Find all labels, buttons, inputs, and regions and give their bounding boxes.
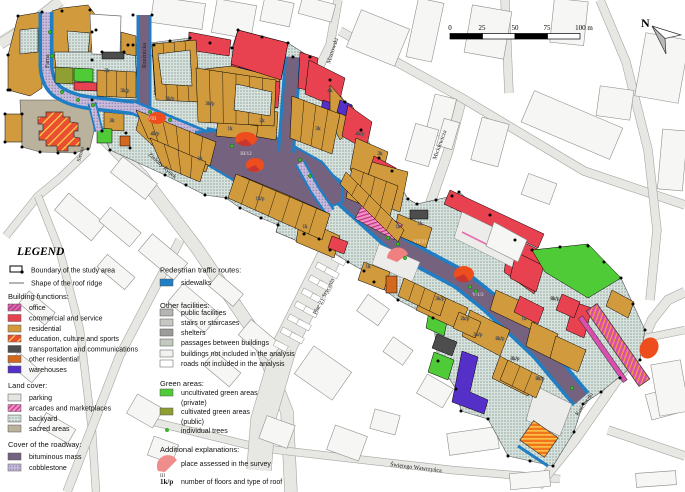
svg-text:place assessed in the survey: place assessed in the survey (181, 461, 271, 468)
svg-text:4k/p: 4k/p (356, 132, 365, 137)
svg-text:8k/p: 8k/p (511, 357, 520, 362)
svg-text:stairs or staircases: stairs or staircases (181, 320, 240, 327)
svg-text:passages between buildings: passages between buildings (181, 340, 269, 347)
svg-text:0: 0 (448, 24, 452, 32)
svg-text:25: 25 (479, 24, 487, 32)
svg-text:1k: 1k (303, 225, 309, 230)
svg-text:4k: 4k (328, 89, 334, 94)
svg-text:V/1/2: V/1/2 (472, 293, 484, 298)
svg-text:sidewalks: sidewalks (181, 280, 212, 287)
svg-text:1k: 1k (522, 317, 528, 322)
svg-text:3k: 3k (110, 119, 116, 124)
svg-text:(public): (public) (181, 419, 204, 426)
svg-text:4k/p: 4k/p (151, 132, 160, 137)
svg-text:cultivated green areas: cultivated green areas (181, 409, 250, 416)
svg-text:Farna: Farna (45, 54, 51, 68)
svg-text:office: office (29, 305, 46, 312)
svg-text:number of floors and type of r: number of floors and type of roof (181, 479, 282, 486)
svg-text:uncultivated green areas: uncultivated green areas (181, 390, 258, 397)
svg-text:Land cover:: Land cover: (8, 381, 47, 390)
svg-text:3k: 3k (378, 152, 384, 157)
svg-text:sacred areas: sacred areas (29, 426, 70, 433)
svg-text:III/12: III/12 (240, 152, 252, 157)
svg-text:75: 75 (544, 24, 552, 32)
svg-text:commercial and service: commercial and service (29, 316, 103, 323)
svg-text:3k/p: 3k/p (166, 97, 175, 102)
svg-text:individual trees: individual trees (181, 428, 228, 435)
svg-text:8k/p: 8k/p (496, 337, 505, 342)
svg-text:3k/p: 3k/p (206, 102, 215, 107)
svg-text:Green areas:: Green areas: (160, 379, 204, 388)
svg-text:residential: residential (29, 326, 61, 333)
svg-text:3k: 3k (316, 127, 322, 132)
svg-text:buildings not included in the: buildings not included in the analysis (181, 351, 295, 358)
svg-text:100 m: 100 m (575, 24, 593, 32)
svg-text:N: N (641, 16, 650, 30)
svg-text:2k: 2k (260, 119, 266, 124)
svg-text:3k/p: 3k/p (436, 297, 445, 302)
svg-text:VII/21: VII/21 (413, 240, 427, 245)
svg-text:1k: 1k (198, 157, 204, 162)
svg-text:backyard: backyard (29, 416, 58, 423)
svg-text:50: 50 (512, 24, 520, 32)
svg-text:Other facilities:: Other facilities: (160, 301, 210, 310)
svg-text:transportation and communicati: transportation and communications (29, 347, 138, 354)
svg-text:public facilities: public facilities (181, 310, 227, 317)
svg-text:other residential: other residential (29, 357, 79, 364)
svg-text:1k: 1k (418, 222, 424, 227)
svg-text:Rzeźnicka: Rzeźnicka (142, 43, 148, 68)
svg-text:8k/p: 8k/p (536, 377, 545, 382)
svg-text:Shape of the roof ridge: Shape of the roof ridge (31, 281, 102, 288)
svg-text:3k/p: 3k/p (121, 89, 130, 94)
svg-text:VIII: VIII (148, 117, 157, 122)
svg-text:3k: 3k (105, 69, 111, 74)
svg-text:1k: 1k (228, 127, 234, 132)
svg-text:warehouses: warehouses (28, 367, 67, 374)
svg-text:Building functions:: Building functions: (8, 292, 69, 301)
svg-text:education, culture and sports: education, culture and sports (29, 336, 119, 343)
svg-text:1k/p: 1k/p (160, 478, 173, 486)
svg-text:shelters: shelters (181, 330, 206, 337)
svg-text:arcades and marketplaces: arcades and marketplaces (29, 406, 112, 413)
svg-text:Cover of the roadway:: Cover of the roadway: (8, 440, 81, 449)
svg-text:Pedestrian traffic routes:: Pedestrian traffic routes: (160, 266, 241, 275)
svg-text:1k/p: 1k/p (256, 197, 265, 202)
svg-text:(private): (private) (181, 400, 207, 407)
svg-text:bituminous mass: bituminous mass (29, 454, 82, 461)
svg-text:parking: parking (29, 395, 52, 402)
svg-text:1k: 1k (366, 265, 372, 270)
svg-text:Boundary of the study area: Boundary of the study area (31, 268, 115, 275)
svg-text:2k/p: 2k/p (461, 317, 470, 322)
svg-text:Additional explanations:: Additional explanations: (160, 445, 239, 454)
svg-text:LEGEND: LEGEND (16, 246, 65, 258)
svg-text:8k/p: 8k/p (551, 297, 560, 302)
svg-text:3k/p: 3k/p (474, 333, 483, 338)
svg-text:roads not included in the anal: roads not included in the analysis (181, 361, 285, 368)
svg-text:1k: 1k (396, 225, 402, 230)
svg-text:cobblestone: cobblestone (29, 465, 67, 472)
